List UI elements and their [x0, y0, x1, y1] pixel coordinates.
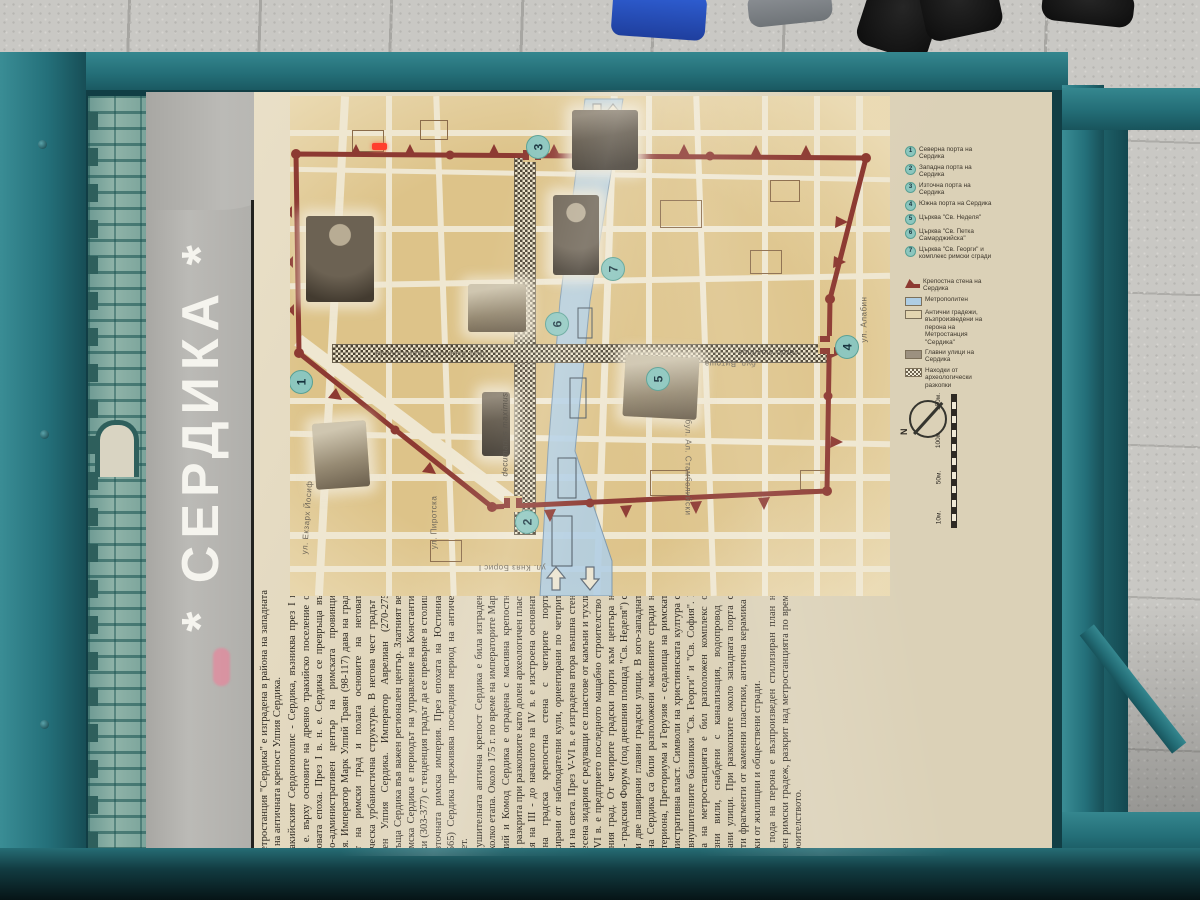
legend-item: 1Северна порта на Сердика	[905, 146, 993, 161]
map-marker-1-north-gate: 1	[290, 370, 313, 394]
legend-item: 3Източна порта на Сердика	[905, 182, 993, 197]
street-label-pirotska: ул. Пиротска	[430, 468, 439, 578]
pink-smudge	[213, 648, 230, 686]
colonnade-building-illustration	[468, 284, 526, 332]
poster-title: * СЕРДИКА *	[150, 180, 252, 690]
map-marker-3-east-gate: 3	[526, 135, 550, 159]
scale-label-100: 100м.	[935, 431, 942, 448]
map-legend-symbols: Крепостна стена на Сердика Метрополитен …	[905, 278, 997, 392]
frame-left-bar	[0, 52, 86, 900]
street-label-cardo: cardo maximus	[713, 348, 823, 357]
paragraph-1: Метростанция "Сердика" е изградена в рай…	[258, 590, 284, 874]
legend-item: Главни улици на Сердика	[905, 349, 997, 364]
frame-bolt-3	[40, 720, 49, 729]
legend-item: 7Църква "Св. Георги" и комплекс римски с…	[905, 246, 993, 261]
legend-item: 2Западна порта на Сердика	[905, 164, 993, 179]
street-label-alabin: ул. Алабин	[860, 275, 869, 365]
legend-item: Антични градежи, възпроизведени на перон…	[905, 309, 997, 346]
frame-top-bar	[0, 52, 1068, 94]
baths-building-illustration	[312, 420, 370, 490]
domed-church-illustration	[306, 216, 374, 302]
metro-symbol-swatch	[905, 297, 922, 306]
frame-right-post-2	[1104, 128, 1128, 812]
north-label: N	[899, 423, 909, 435]
legend-item: 4Южна порта на Сердика	[905, 200, 993, 211]
legend-item: 6Църква "Св. Петка Самарджийска"	[905, 228, 993, 243]
legend-item: 5Църква "Св. Неделя"	[905, 214, 993, 225]
scale-label-50: 50м.	[935, 471, 942, 485]
street-label-knyaz-boris: ул. Княз Борис I	[452, 563, 572, 572]
scale-bar	[951, 394, 957, 528]
street-label-maria-luiza: бул. Княгиня Мария Луиза	[330, 349, 530, 358]
fortress-wall-art-strip	[88, 96, 146, 850]
fortress-gate-arch-drawing	[95, 420, 139, 477]
red-marker-sticker	[372, 143, 387, 150]
street-label-stamboliyski: бул. Ал. Стамболийски	[684, 388, 693, 548]
street-label-decumanus: decumanus maximus	[501, 360, 510, 510]
map-marker-2-west-gate: 2	[515, 510, 539, 534]
paragraph-3: Внушителната антична крепост Сердика е б…	[473, 590, 763, 874]
main-streets-swatch	[905, 350, 922, 359]
map-legend-numbered: 1Северна порта на Сердика 2Западна порта…	[905, 146, 993, 264]
photo-of-serdika-metro-information-board: * СЕРДИКА * Метростанция "Сердика" е изг…	[0, 0, 1200, 900]
scale-label-150: 150м.	[935, 393, 942, 410]
frame-right-post	[1062, 85, 1104, 860]
map-marker-5-st-nedelya: 5	[646, 367, 670, 391]
scale-label-10: 10м.	[935, 511, 942, 525]
legend-item: Находки от археологически разкопки	[905, 367, 997, 389]
street-label-vitosha: бул. Витоша	[675, 359, 785, 368]
largo-building-illustration	[572, 110, 638, 170]
blue-bag	[611, 0, 708, 41]
map-marker-4-south-gate: 4	[835, 335, 859, 359]
frame-bottom-bar	[0, 848, 1200, 900]
serdika-ancient-city-map: ул. Екзарх Йосиф ул. Пиротска бул. Княги…	[290, 96, 890, 596]
fortress-wall-outline	[290, 96, 890, 596]
rotunda-st-george-illustration	[553, 195, 599, 275]
excavation-finds-swatch	[905, 368, 922, 377]
poster-description-text: Метростанция "Сердика" е изградена в рай…	[258, 590, 812, 874]
paragraph-2: Тракийският Сердонополис - Сердика, възн…	[286, 590, 471, 874]
wall-symbol-swatch	[905, 279, 920, 288]
legend-item: Крепостна стена на Сердика	[905, 278, 997, 293]
frame-right-rail-top	[1062, 88, 1200, 130]
paragraph-4: На пода на перона е възпроизведен стилиз…	[766, 590, 806, 874]
ancient-structures-swatch	[905, 310, 922, 319]
legend-item: Метрополитен	[905, 296, 997, 306]
frame-bolt-1	[38, 140, 47, 149]
map-marker-7-st-george: 7	[601, 257, 625, 281]
map-marker-6-st-petka: 6	[545, 312, 569, 336]
frame-bolt-2	[40, 430, 49, 439]
crenellation-drawing	[88, 96, 98, 850]
